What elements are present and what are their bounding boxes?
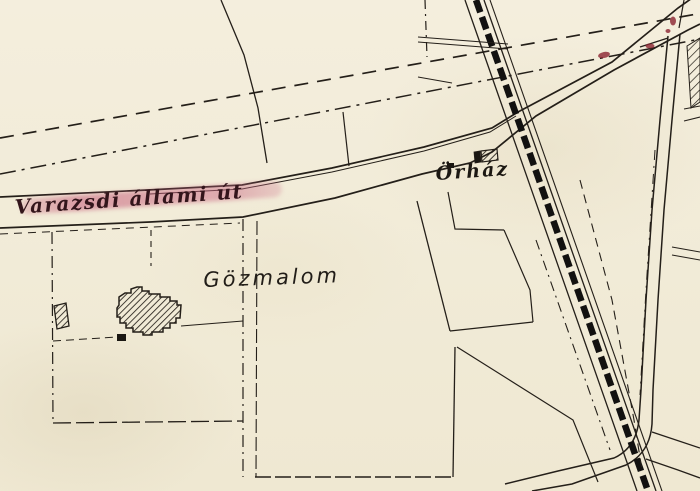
mill-parcel-west bbox=[52, 232, 53, 423]
survey-dashed-line-upper bbox=[0, 14, 697, 138]
side-road-left-edge bbox=[505, 36, 668, 484]
railway-outer-line bbox=[490, 0, 662, 491]
hatched-strip-area bbox=[687, 38, 700, 108]
guardhouse-parcel-west bbox=[417, 201, 450, 331]
railway-left-rail bbox=[465, 0, 637, 491]
red-ink-stains bbox=[598, 17, 676, 60]
stain-4 bbox=[666, 29, 671, 33]
stain-3 bbox=[670, 17, 676, 26]
railway-west-boundary-top bbox=[425, 0, 427, 57]
parcel-boundaries bbox=[52, 0, 598, 482]
embankment-hatch-strip bbox=[684, 38, 700, 121]
mill-main-building bbox=[117, 287, 181, 335]
junction-stub-north bbox=[679, 0, 684, 28]
guardhouse-parcel-top bbox=[448, 192, 504, 230]
mill-side-building bbox=[54, 303, 69, 329]
railway-line bbox=[418, 0, 662, 491]
side-road-dashdot-companion bbox=[640, 150, 655, 395]
mill-small-annex bbox=[117, 334, 126, 341]
railway-right-rail bbox=[484, 0, 656, 491]
crossing-line-lower bbox=[418, 77, 452, 83]
steam-mill-building bbox=[54, 287, 181, 341]
side-road-east bbox=[505, 0, 700, 491]
guardhouse-parcel-east bbox=[504, 230, 533, 322]
parcel-line-north bbox=[221, 0, 267, 163]
map-canvas: Varazsdi állami út Gözmalom Örház bbox=[0, 0, 700, 491]
road-top-edge bbox=[0, 0, 695, 197]
guardhouse-parcel-bottom bbox=[450, 322, 533, 331]
mill-inner-dash bbox=[53, 337, 117, 341]
parcel-line-north-2 bbox=[343, 112, 349, 166]
lane-east-line bbox=[256, 221, 257, 477]
road-fork-upper-edge bbox=[652, 432, 700, 448]
mill-parcel-south bbox=[53, 421, 243, 423]
map-drawing bbox=[0, 0, 700, 491]
mill-access-line bbox=[181, 321, 243, 326]
stain-2 bbox=[646, 44, 655, 49]
field-east-edge bbox=[453, 347, 455, 477]
side-road-right-edge bbox=[532, 34, 680, 491]
stain-1 bbox=[598, 51, 611, 59]
east-branch-upper bbox=[672, 247, 700, 252]
road-bottom-companion-dashes bbox=[0, 223, 240, 234]
survey-dashed-lines bbox=[0, 14, 697, 174]
east-branch-lower bbox=[672, 255, 700, 260]
field-diagonal-to-railway bbox=[457, 347, 598, 482]
railway-black-band bbox=[476, 0, 648, 491]
mill-label: Gözmalom bbox=[203, 263, 340, 292]
edge-line-2 bbox=[684, 117, 700, 121]
